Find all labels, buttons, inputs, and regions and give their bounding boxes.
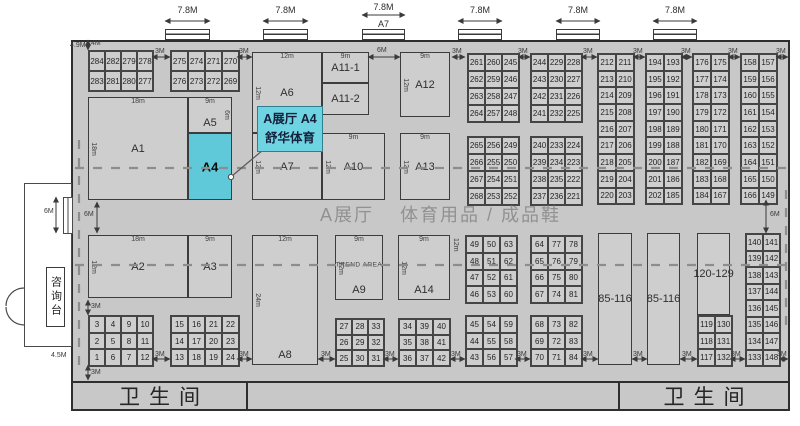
booth-cell-222[interactable]: 222 bbox=[565, 171, 582, 188]
booth-cell-227[interactable]: 227 bbox=[565, 71, 582, 88]
booth-cell-10[interactable]: 10 bbox=[137, 316, 153, 333]
booth-cell-187[interactable]: 187 bbox=[664, 154, 682, 171]
booth-cell-271[interactable]: 271 bbox=[205, 51, 222, 71]
booth-cell-164[interactable]: 164 bbox=[741, 154, 759, 171]
booth-cell-35[interactable]: 35 bbox=[399, 335, 416, 351]
booth-cell-150[interactable]: 150 bbox=[759, 171, 777, 188]
booth-cell-84[interactable]: 84 bbox=[565, 349, 582, 366]
booth-cell-29[interactable]: 29 bbox=[352, 335, 368, 351]
booth-cell-145[interactable]: 145 bbox=[763, 300, 780, 317]
booth-cell-77[interactable]: 77 bbox=[548, 236, 565, 253]
booth-cell-201[interactable]: 201 bbox=[646, 171, 664, 188]
booth-cell-258[interactable]: 258 bbox=[485, 88, 502, 105]
booth-cell-74[interactable]: 74 bbox=[548, 286, 565, 303]
booth-cell-248[interactable]: 248 bbox=[502, 105, 519, 122]
booth-cell-269[interactable]: 269 bbox=[222, 71, 239, 91]
booth-cell-49[interactable]: 49 bbox=[466, 236, 483, 253]
booth-cell-167[interactable]: 167 bbox=[711, 188, 729, 205]
booth-cell-7[interactable]: 7 bbox=[121, 349, 137, 366]
booth-dim-left: 12m bbox=[402, 160, 409, 174]
booth-cell-52[interactable]: 52 bbox=[483, 270, 500, 287]
restroom-left: 卫生间 bbox=[71, 381, 248, 411]
booth-cell-233[interactable]: 233 bbox=[548, 137, 565, 154]
booth-cell-42[interactable]: 42 bbox=[433, 350, 450, 366]
booth-cell-60[interactable]: 60 bbox=[500, 286, 517, 303]
hall-title: A展厅 体育用品 / 成品鞋 bbox=[320, 201, 561, 227]
booth-cell-181[interactable]: 181 bbox=[693, 137, 711, 154]
booth-cell-119[interactable]: 119 bbox=[698, 316, 715, 333]
booth-cell-284[interactable]: 284 bbox=[89, 51, 105, 71]
dimension-label: 3M bbox=[321, 351, 331, 358]
booth-cell-239[interactable]: 239 bbox=[531, 154, 548, 171]
booth-A11-2[interactable]: A11-2 bbox=[322, 83, 369, 115]
booth-cell-270[interactable]: 270 bbox=[222, 51, 239, 71]
booth-cell-185[interactable]: 185 bbox=[664, 188, 682, 205]
booth-cell-174[interactable]: 174 bbox=[711, 71, 729, 88]
booth-cell-44[interactable]: 44 bbox=[466, 333, 483, 350]
booth-cell-144[interactable]: 144 bbox=[763, 284, 780, 301]
booth-cell-278[interactable]: 278 bbox=[137, 51, 153, 71]
booth-label: A12 bbox=[415, 79, 435, 91]
booth-cell-55[interactable]: 55 bbox=[483, 333, 500, 350]
dimension-label: 3M bbox=[777, 351, 787, 358]
booth-cell-276[interactable]: 276 bbox=[171, 71, 188, 91]
booth-cell-3[interactable]: 3 bbox=[89, 316, 105, 333]
booth-label: A11-2 bbox=[331, 93, 360, 105]
booth-cell-12[interactable]: 12 bbox=[137, 349, 153, 366]
booth-cell-183[interactable]: 183 bbox=[693, 171, 711, 188]
booth-grid-17: 343940353841363742 bbox=[398, 318, 451, 367]
booth-cell-43[interactable]: 43 bbox=[466, 349, 483, 366]
booth-cell-157[interactable]: 157 bbox=[759, 54, 777, 71]
booth-cell-275[interactable]: 275 bbox=[171, 51, 188, 71]
booth-cell-244[interactable]: 244 bbox=[531, 54, 548, 71]
booth-cell-208[interactable]: 208 bbox=[616, 104, 634, 121]
booth-cell-274[interactable]: 274 bbox=[188, 51, 205, 71]
booth-cell-30[interactable]: 30 bbox=[352, 350, 368, 366]
booth-cell-14[interactable]: 14 bbox=[171, 333, 188, 350]
booth-cell-20[interactable]: 20 bbox=[205, 333, 222, 350]
booth-cell-15[interactable]: 15 bbox=[171, 316, 188, 333]
booth-cell-153[interactable]: 153 bbox=[759, 121, 777, 138]
booth-cell-165[interactable]: 165 bbox=[741, 171, 759, 188]
booth-cell-4[interactable]: 4 bbox=[105, 316, 121, 333]
booth-cell-266[interactable]: 266 bbox=[468, 154, 485, 171]
booth-grid-12: 495063485162475261465360 bbox=[465, 235, 518, 304]
booth-cell-223[interactable]: 223 bbox=[565, 154, 582, 171]
booth-cell-34[interactable]: 34 bbox=[399, 319, 416, 335]
booth-cell-58[interactable]: 58 bbox=[500, 333, 517, 350]
booth-cell-59[interactable]: 59 bbox=[500, 316, 517, 333]
booth-cell-142[interactable]: 142 bbox=[763, 251, 780, 268]
booth-cell-23[interactable]: 23 bbox=[222, 333, 239, 350]
booth-cell-192[interactable]: 192 bbox=[664, 71, 682, 88]
booth-cell-72[interactable]: 72 bbox=[548, 333, 565, 350]
booth-cell-205[interactable]: 205 bbox=[616, 154, 634, 171]
booth-label: A10 bbox=[344, 161, 364, 173]
booth-grid-2: 261260245262259246263258247264257248 bbox=[467, 53, 520, 123]
booth-cell-220[interactable]: 220 bbox=[598, 188, 616, 205]
booth-grid-13: 647778657679667580677481 bbox=[530, 235, 583, 304]
booth-cell-47[interactable]: 47 bbox=[466, 270, 483, 287]
booth-cell-215[interactable]: 215 bbox=[598, 104, 616, 121]
booth-cell-70[interactable]: 70 bbox=[531, 349, 548, 366]
booth-cell-231[interactable]: 231 bbox=[548, 88, 565, 105]
booth-cell-66[interactable]: 66 bbox=[531, 270, 548, 287]
booth-cell-230[interactable]: 230 bbox=[548, 71, 565, 88]
booth-cell-25[interactable]: 25 bbox=[336, 350, 352, 366]
booth-A1[interactable]: 18m18mA1 bbox=[88, 97, 188, 200]
booth-120-129[interactable]: 120-129 bbox=[697, 233, 730, 315]
booth-A10[interactable]: 9m12mA10 bbox=[322, 133, 385, 200]
booth-cell-211[interactable]: 211 bbox=[616, 54, 634, 71]
booth-cell-228[interactable]: 228 bbox=[565, 54, 582, 71]
booth-label: A3 bbox=[203, 261, 216, 273]
booth-cell-64[interactable]: 64 bbox=[531, 236, 548, 253]
booth-cell-9[interactable]: 9 bbox=[121, 316, 137, 333]
booth-cell-194[interactable]: 194 bbox=[646, 54, 664, 71]
booth-cell-143[interactable]: 143 bbox=[763, 267, 780, 284]
booth-cell-147[interactable]: 147 bbox=[763, 333, 780, 350]
booth-cell-80[interactable]: 80 bbox=[565, 270, 582, 287]
booth-cell-283[interactable]: 283 bbox=[89, 71, 105, 91]
booth-cell-19[interactable]: 19 bbox=[205, 349, 222, 366]
booth-cell-27[interactable]: 27 bbox=[336, 319, 352, 335]
booth-cell-246[interactable]: 246 bbox=[502, 71, 519, 88]
booth-cell-175[interactable]: 175 bbox=[711, 54, 729, 71]
booth-cell-56[interactable]: 56 bbox=[483, 349, 500, 366]
booth-cell-200[interactable]: 200 bbox=[646, 154, 664, 171]
booth-cell-65[interactable]: 65 bbox=[531, 253, 548, 270]
booth-cell-81[interactable]: 81 bbox=[565, 286, 582, 303]
booth-cell-37[interactable]: 37 bbox=[416, 350, 433, 366]
booth-cell-63[interactable]: 63 bbox=[500, 236, 517, 253]
booth-cell-225[interactable]: 225 bbox=[565, 105, 582, 122]
booth-cell-257[interactable]: 257 bbox=[485, 105, 502, 122]
booth-label: A5 bbox=[203, 117, 216, 129]
booth-cell-254[interactable]: 254 bbox=[485, 171, 502, 188]
booth-cell-62[interactable]: 62 bbox=[500, 253, 517, 270]
booth-cell-51[interactable]: 51 bbox=[483, 253, 500, 270]
booth-cell-166[interactable]: 166 bbox=[741, 188, 759, 205]
booth-cell-212[interactable]: 212 bbox=[598, 54, 616, 71]
booth-cell-277[interactable]: 277 bbox=[137, 71, 153, 91]
dimension-label: 3M bbox=[776, 48, 786, 55]
booth-cell-267[interactable]: 267 bbox=[468, 171, 485, 188]
booth-cell-69[interactable]: 69 bbox=[531, 333, 548, 350]
entrance-door-arc bbox=[6, 288, 24, 306]
booth-cell-21[interactable]: 21 bbox=[205, 316, 222, 333]
booth-cell-38[interactable]: 38 bbox=[416, 335, 433, 351]
dimension-label: 3M bbox=[451, 351, 461, 358]
booth-A11-1[interactable]: 9mA11-1 bbox=[322, 52, 369, 83]
booth-cell-31[interactable]: 31 bbox=[368, 350, 384, 366]
booth-cell-33[interactable]: 33 bbox=[368, 319, 384, 335]
booth-cell-135[interactable]: 135 bbox=[746, 317, 763, 334]
booth-cell-161[interactable]: 161 bbox=[741, 104, 759, 121]
booth-cell-137[interactable]: 137 bbox=[746, 284, 763, 301]
booth-grid-16: 272833262932253031 bbox=[335, 318, 385, 367]
booth-A4[interactable]: A4 bbox=[188, 133, 232, 200]
booth-cell-16[interactable]: 16 bbox=[188, 316, 205, 333]
dimension-label: 6M bbox=[377, 47, 387, 54]
booth-cell-45[interactable]: 45 bbox=[466, 316, 483, 333]
booth-cell-75[interactable]: 75 bbox=[548, 270, 565, 287]
dimension-label: 3M bbox=[91, 369, 101, 376]
booth-cell-232[interactable]: 232 bbox=[548, 105, 565, 122]
booth-cell-241[interactable]: 241 bbox=[531, 105, 548, 122]
booth-cell-196[interactable]: 196 bbox=[646, 87, 664, 104]
booth-cell-1[interactable]: 1 bbox=[89, 349, 105, 366]
booth-cell-243[interactable]: 243 bbox=[531, 71, 548, 88]
booth-cell-182[interactable]: 182 bbox=[693, 154, 711, 171]
booth-cell-134[interactable]: 134 bbox=[746, 333, 763, 350]
booth-dim-left: 12m bbox=[400, 261, 407, 275]
booth-cell-263[interactable]: 263 bbox=[468, 88, 485, 105]
dimension-label: 3M bbox=[385, 351, 395, 358]
booth-cell-282[interactable]: 282 bbox=[105, 51, 121, 71]
booth-cell-53[interactable]: 53 bbox=[483, 286, 500, 303]
gate-width-label: 7.8M bbox=[177, 5, 197, 15]
booth-cell-76[interactable]: 76 bbox=[548, 253, 565, 270]
booth-85-116[interactable]: 85-116 bbox=[647, 233, 680, 365]
booth-cell-73[interactable]: 73 bbox=[548, 316, 565, 333]
booth-cell-195[interactable]: 195 bbox=[646, 71, 664, 88]
booth-cell-117[interactable]: 117 bbox=[698, 349, 715, 366]
booth-cell-197[interactable]: 197 bbox=[646, 104, 664, 121]
booth-cell-221[interactable]: 221 bbox=[565, 188, 582, 205]
booth-cell-54[interactable]: 54 bbox=[483, 316, 500, 333]
booth-cell-61[interactable]: 61 bbox=[500, 270, 517, 287]
booth-cell-218[interactable]: 218 bbox=[598, 154, 616, 171]
booth-cell-279[interactable]: 279 bbox=[121, 51, 137, 71]
booth-cell-203[interactable]: 203 bbox=[616, 188, 634, 205]
booth-cell-245[interactable]: 245 bbox=[502, 54, 519, 71]
booth-cell-160[interactable]: 160 bbox=[741, 87, 759, 104]
booth-cell-155[interactable]: 155 bbox=[759, 87, 777, 104]
booth-cell-67[interactable]: 67 bbox=[531, 286, 548, 303]
booth-cell-210[interactable]: 210 bbox=[616, 71, 634, 88]
booth-cell-168[interactable]: 168 bbox=[711, 171, 729, 188]
booth-cell-6[interactable]: 6 bbox=[105, 349, 121, 366]
booth-cell-28[interactable]: 28 bbox=[352, 319, 368, 335]
booth-cell-79[interactable]: 79 bbox=[565, 253, 582, 270]
booth-cell-256[interactable]: 256 bbox=[485, 137, 502, 154]
dimension-label: 3M bbox=[633, 48, 643, 55]
booth-cell-32[interactable]: 32 bbox=[368, 335, 384, 351]
booth-cell-262[interactable]: 262 bbox=[468, 71, 485, 88]
booth-cell-22[interactable]: 22 bbox=[222, 316, 239, 333]
booth-dim-left: 12m bbox=[254, 86, 261, 100]
booth-cell-146[interactable]: 146 bbox=[763, 317, 780, 334]
booth-A9[interactable]: 9m12mTREND AREAA9 bbox=[335, 235, 383, 300]
booth-cell-169[interactable]: 169 bbox=[711, 154, 729, 171]
booth-A12[interactable]: 9m12mA12 bbox=[400, 52, 450, 117]
booth-cell-26[interactable]: 26 bbox=[336, 335, 352, 351]
booth-cell-118[interactable]: 118 bbox=[698, 333, 715, 350]
booth-cell-156[interactable]: 156 bbox=[759, 71, 777, 88]
booth-cell-159[interactable]: 159 bbox=[741, 71, 759, 88]
booth-cell-50[interactable]: 50 bbox=[483, 236, 500, 253]
bottom-strip-middle bbox=[246, 381, 620, 411]
gate-width-label: 7.8M bbox=[275, 5, 295, 15]
booth-cell-184[interactable]: 184 bbox=[693, 188, 711, 205]
booth-cell-189[interactable]: 189 bbox=[664, 121, 682, 138]
booth-cell-46[interactable]: 46 bbox=[466, 286, 483, 303]
booth-cell-40[interactable]: 40 bbox=[433, 319, 450, 335]
booth-cell-78[interactable]: 78 bbox=[565, 236, 582, 253]
booth-cell-259[interactable]: 259 bbox=[485, 71, 502, 88]
booth-cell-261[interactable]: 261 bbox=[468, 54, 485, 71]
booth-dim-left: 12m bbox=[90, 260, 97, 274]
booth-cell-177[interactable]: 177 bbox=[693, 71, 711, 88]
booth-cell-133[interactable]: 133 bbox=[746, 350, 763, 367]
booth-cell-2[interactable]: 2 bbox=[89, 333, 105, 350]
booth-cell-173[interactable]: 173 bbox=[711, 87, 729, 104]
gate-width-label: 7.8M bbox=[470, 5, 490, 15]
dimension-label: 3M bbox=[583, 48, 593, 55]
booth-cell-18[interactable]: 18 bbox=[188, 349, 205, 366]
booth-cell-219[interactable]: 219 bbox=[598, 171, 616, 188]
booth-cell-11[interactable]: 11 bbox=[137, 333, 153, 350]
booth-cell-206[interactable]: 206 bbox=[616, 137, 634, 154]
booth-label: 120-129 bbox=[693, 268, 733, 280]
booth-cell-179[interactable]: 179 bbox=[693, 104, 711, 121]
booth-cell-140[interactable]: 140 bbox=[746, 234, 763, 251]
booth-cell-209[interactable]: 209 bbox=[616, 87, 634, 104]
dimension-label: 4.5M bbox=[51, 352, 67, 359]
booth-A5[interactable]: 9m6mA5 bbox=[188, 97, 232, 133]
booth-cell-260[interactable]: 260 bbox=[485, 54, 502, 71]
booth-cell-136[interactable]: 136 bbox=[746, 300, 763, 317]
dimension-label: 3M bbox=[155, 351, 165, 358]
booth-cell-226[interactable]: 226 bbox=[565, 88, 582, 105]
booth-cell-224[interactable]: 224 bbox=[565, 137, 582, 154]
booth-cell-172[interactable]: 172 bbox=[711, 104, 729, 121]
booth-grid-5: 240233224239234223238235222237236221 bbox=[530, 136, 583, 206]
booth-cell-234[interactable]: 234 bbox=[548, 154, 565, 171]
dimension-label: 3M bbox=[517, 351, 527, 358]
booth-cell-255[interactable]: 255 bbox=[485, 154, 502, 171]
booth-cell-186[interactable]: 186 bbox=[664, 171, 682, 188]
booth-A8[interactable]: 12m24mA8 bbox=[252, 235, 318, 365]
booth-cell-242[interactable]: 242 bbox=[531, 88, 548, 105]
booth-cell-178[interactable]: 178 bbox=[693, 87, 711, 104]
booth-cell-280[interactable]: 280 bbox=[121, 71, 137, 91]
restroom-right-label: 卫生间 bbox=[655, 381, 754, 411]
booth-cell-217[interactable]: 217 bbox=[598, 137, 616, 154]
booth-cell-273[interactable]: 273 bbox=[188, 71, 205, 91]
booth-cell-131[interactable]: 131 bbox=[715, 333, 732, 350]
booth-cell-141[interactable]: 141 bbox=[763, 234, 780, 251]
dimension-label: 3M bbox=[633, 351, 643, 358]
booth-cell-199[interactable]: 199 bbox=[646, 137, 664, 154]
booth-cell-57[interactable]: 57 bbox=[500, 349, 517, 366]
booth-cell-130[interactable]: 130 bbox=[715, 316, 732, 333]
hall-title-part2: 体育用品 / 成品鞋 bbox=[400, 201, 561, 227]
booth-cell-71[interactable]: 71 bbox=[548, 349, 565, 366]
booth-A2[interactable]: 18m12mA2 bbox=[88, 235, 188, 298]
booth-dim-top: 9m bbox=[341, 53, 351, 60]
booth-cell-149[interactable]: 149 bbox=[759, 188, 777, 205]
booth-A13[interactable]: 9m12mA13 bbox=[400, 133, 450, 200]
booth-cell-180[interactable]: 180 bbox=[693, 121, 711, 138]
booth-cell-188[interactable]: 188 bbox=[664, 137, 682, 154]
booth-cell-152[interactable]: 152 bbox=[759, 137, 777, 154]
booth-cell-214[interactable]: 214 bbox=[598, 87, 616, 104]
booth-cell-132[interactable]: 132 bbox=[715, 349, 732, 366]
booth-cell-39[interactable]: 39 bbox=[416, 319, 433, 335]
booth-cell-41[interactable]: 41 bbox=[433, 335, 450, 351]
booth-cell-48[interactable]: 48 bbox=[466, 253, 483, 270]
booth-cell-8[interactable]: 8 bbox=[121, 333, 137, 350]
booth-cell-240[interactable]: 240 bbox=[531, 137, 548, 154]
booth-cell-265[interactable]: 265 bbox=[468, 137, 485, 154]
booth-cell-36[interactable]: 36 bbox=[399, 350, 416, 366]
booth-cell-13[interactable]: 13 bbox=[171, 349, 188, 366]
gate-top-2 bbox=[263, 29, 308, 40]
booth-cell-264[interactable]: 264 bbox=[468, 105, 485, 122]
booth-cell-202[interactable]: 202 bbox=[646, 188, 664, 205]
booth-dim-top: 12m bbox=[278, 236, 292, 243]
booth-cell-138[interactable]: 138 bbox=[746, 267, 763, 284]
booth-cell-249[interactable]: 249 bbox=[502, 137, 519, 154]
booth-cell-139[interactable]: 139 bbox=[746, 251, 763, 268]
booth-cell-158[interactable]: 158 bbox=[741, 54, 759, 71]
booth-cell-163[interactable]: 163 bbox=[741, 137, 759, 154]
booth-cell-24[interactable]: 24 bbox=[222, 349, 239, 366]
booth-cell-281[interactable]: 281 bbox=[105, 71, 121, 91]
booth-cell-216[interactable]: 216 bbox=[598, 121, 616, 138]
booth-cell-151[interactable]: 151 bbox=[759, 154, 777, 171]
booth-grid-19: 151621221417202313181924 bbox=[170, 315, 240, 367]
booth-label: A4 bbox=[202, 159, 219, 174]
booth-cell-193[interactable]: 193 bbox=[664, 54, 682, 71]
booth-cell-191[interactable]: 191 bbox=[664, 87, 682, 104]
booth-cell-247[interactable]: 247 bbox=[502, 88, 519, 105]
gate-width-label: 7.8M bbox=[568, 5, 588, 15]
booth-cell-83[interactable]: 83 bbox=[565, 333, 582, 350]
booth-label: A7 bbox=[280, 161, 293, 173]
booth-dim-top: 9m bbox=[420, 134, 430, 141]
booth-cell-238[interactable]: 238 bbox=[531, 171, 548, 188]
booth-cell-213[interactable]: 213 bbox=[598, 71, 616, 88]
booth-cell-190[interactable]: 190 bbox=[664, 104, 682, 121]
booth-cell-82[interactable]: 82 bbox=[565, 316, 582, 333]
booth-extra-label: TREND AREA bbox=[336, 261, 383, 268]
booth-cell-250[interactable]: 250 bbox=[502, 154, 519, 171]
booth-A14[interactable]: 9m12mA14 bbox=[398, 235, 450, 300]
booth-A3[interactable]: 9mA3 bbox=[188, 235, 232, 298]
booth-cell-162[interactable]: 162 bbox=[741, 121, 759, 138]
booth-cell-5[interactable]: 5 bbox=[105, 333, 121, 350]
booth-cell-171[interactable]: 171 bbox=[711, 121, 729, 138]
booth-cell-176[interactable]: 176 bbox=[693, 54, 711, 71]
booth-cell-204[interactable]: 204 bbox=[616, 171, 634, 188]
booth-cell-251[interactable]: 251 bbox=[502, 171, 519, 188]
gate-name-label: A7 bbox=[378, 19, 389, 29]
booth-cell-272[interactable]: 272 bbox=[205, 71, 222, 91]
booth-cell-229[interactable]: 229 bbox=[548, 54, 565, 71]
booth-cell-235[interactable]: 235 bbox=[548, 171, 565, 188]
booth-cell-207[interactable]: 207 bbox=[616, 121, 634, 138]
booth-cell-198[interactable]: 198 bbox=[646, 121, 664, 138]
booth-cell-170[interactable]: 170 bbox=[711, 137, 729, 154]
booth-cell-68[interactable]: 68 bbox=[531, 316, 548, 333]
booth-cell-17[interactable]: 17 bbox=[188, 333, 205, 350]
booth-85-116[interactable]: 85-116 bbox=[598, 233, 632, 365]
booth-cell-154[interactable]: 154 bbox=[759, 104, 777, 121]
